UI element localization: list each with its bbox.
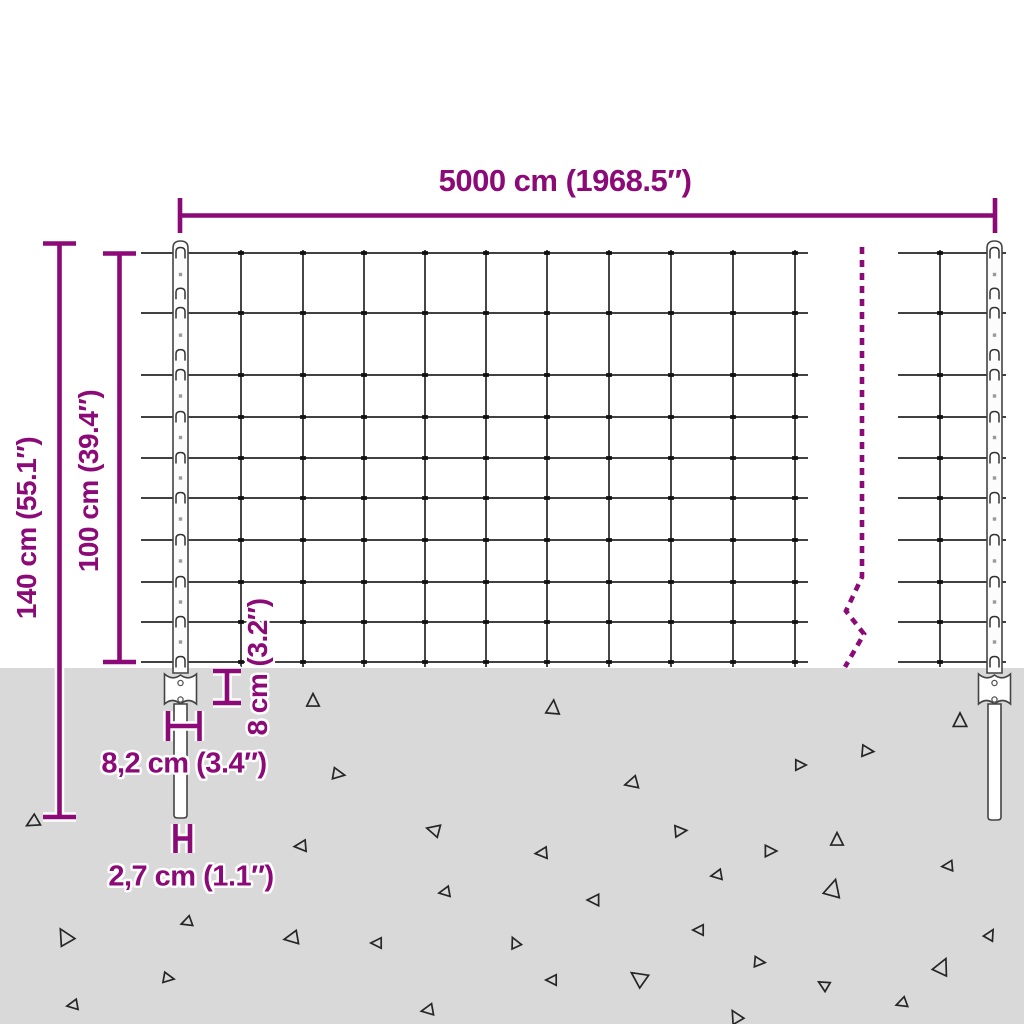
wire-knot xyxy=(730,620,736,624)
wire-knot xyxy=(792,580,798,584)
wire-knot xyxy=(238,251,244,255)
wire-clip xyxy=(990,493,999,504)
wire-knot xyxy=(544,538,550,542)
wire-knot xyxy=(937,660,943,664)
plate-hole xyxy=(992,680,997,685)
wire-knot xyxy=(792,496,798,500)
wire-knot xyxy=(238,311,244,315)
wire-knot xyxy=(730,311,736,315)
wire-clip xyxy=(176,453,185,464)
wire-clip xyxy=(176,288,185,299)
wire-knot xyxy=(606,580,612,584)
wire-knot xyxy=(483,496,489,500)
wire-knot xyxy=(483,538,489,542)
wire-knot xyxy=(937,251,943,255)
wire-knot xyxy=(606,373,612,377)
wire-knot xyxy=(422,580,428,584)
wire-knot xyxy=(238,373,244,377)
post-dot xyxy=(179,600,182,603)
wire-knot xyxy=(422,456,428,460)
post-dot xyxy=(179,640,182,643)
wire-clip xyxy=(990,308,999,319)
wire-knot xyxy=(483,620,489,624)
wire-clip xyxy=(990,453,999,464)
ground xyxy=(0,668,1024,1024)
wire-knot xyxy=(238,415,244,419)
post-dot xyxy=(993,476,996,479)
wire-clip xyxy=(990,657,999,668)
total-width-label: 5000 cm (1968.5″) xyxy=(439,163,692,199)
post-dot xyxy=(179,559,182,562)
wire-knot xyxy=(361,580,367,584)
post-dot xyxy=(993,394,996,397)
wire-clip xyxy=(990,370,999,381)
wire-knot xyxy=(361,538,367,542)
wire-knot xyxy=(544,415,550,419)
wire-knot xyxy=(668,415,674,419)
wire-knot xyxy=(544,373,550,377)
plate-hole xyxy=(178,680,183,685)
wire-knot xyxy=(606,251,612,255)
wire-knot xyxy=(483,415,489,419)
wire-knot xyxy=(422,373,428,377)
wire-knot xyxy=(730,456,736,460)
wire-knot xyxy=(792,620,798,624)
wire-knot xyxy=(544,456,550,460)
wire-knot xyxy=(300,456,306,460)
plate-hole xyxy=(992,697,997,702)
wire-clip xyxy=(990,412,999,423)
wire-knot xyxy=(792,251,798,255)
wire-knot xyxy=(730,580,736,584)
wire-knot xyxy=(300,660,306,664)
post-dot xyxy=(179,273,182,276)
wire-knot xyxy=(361,373,367,377)
wire-knot xyxy=(238,456,244,460)
wire-knot xyxy=(422,660,428,664)
mesh-height-label: 100 cm (39.4″) xyxy=(73,390,105,572)
wire-knot xyxy=(544,311,550,315)
wire-knot xyxy=(606,311,612,315)
wire-knot xyxy=(730,496,736,500)
plate-height-label: 8 cm (3.2″) xyxy=(242,598,274,735)
wire-knot xyxy=(300,373,306,377)
wire-knot xyxy=(422,251,428,255)
wire-clip xyxy=(990,577,999,588)
wire-knot xyxy=(606,496,612,500)
wire-knot xyxy=(792,538,798,542)
total-height-label: 140 cm (55.1″) xyxy=(11,437,43,619)
ground-spike xyxy=(988,704,1001,820)
wire-knot xyxy=(937,538,943,542)
wire-knot xyxy=(300,620,306,624)
wire-knot xyxy=(300,496,306,500)
wire-clip xyxy=(176,535,185,546)
wire-knot xyxy=(483,456,489,460)
wire-knot xyxy=(422,311,428,315)
wire-knot xyxy=(483,660,489,664)
wire-knot xyxy=(606,538,612,542)
wire-clip xyxy=(176,412,185,423)
wire-knot xyxy=(300,311,306,315)
post-dot xyxy=(993,436,996,439)
wire-knot xyxy=(668,496,674,500)
wire-knot xyxy=(483,580,489,584)
wire-knot xyxy=(606,620,612,624)
plate-width-label: 8,2 cm (3.4″) xyxy=(101,748,266,781)
wire-knot xyxy=(544,496,550,500)
post-dot xyxy=(993,517,996,520)
wire-knot xyxy=(238,538,244,542)
wire-knot xyxy=(937,580,943,584)
wire-knot xyxy=(606,660,612,664)
dim-total-width xyxy=(180,198,995,233)
wire-knot xyxy=(937,373,943,377)
wire-clip xyxy=(176,577,185,588)
wire-knot xyxy=(544,580,550,584)
wire-knot xyxy=(937,456,943,460)
post-dot xyxy=(993,559,996,562)
wire-clip xyxy=(176,657,185,668)
wire-clip xyxy=(990,350,999,361)
wire-knot xyxy=(668,538,674,542)
wire-clip xyxy=(176,617,185,628)
wire-knot xyxy=(606,415,612,419)
wire-knot xyxy=(792,660,798,664)
wire-knot xyxy=(361,415,367,419)
wire-knot xyxy=(937,311,943,315)
wire-knot xyxy=(730,660,736,664)
wire-knot xyxy=(422,496,428,500)
wire-knot xyxy=(483,311,489,315)
wire-knot xyxy=(668,660,674,664)
wire-knot xyxy=(238,496,244,500)
post-dot xyxy=(179,436,182,439)
wire-knot xyxy=(937,496,943,500)
post-dot xyxy=(179,517,182,520)
wire-knot xyxy=(668,620,674,624)
post-dot xyxy=(179,333,182,336)
post-dot xyxy=(993,600,996,603)
wire-knot xyxy=(361,660,367,664)
wire-knot xyxy=(300,415,306,419)
wire-knot xyxy=(422,538,428,542)
wire-clip xyxy=(176,248,185,259)
wire-knot xyxy=(422,620,428,624)
wire-knot xyxy=(361,620,367,624)
wire-knot xyxy=(422,415,428,419)
post-dot xyxy=(993,640,996,643)
wire-knot xyxy=(544,620,550,624)
post-dot xyxy=(179,476,182,479)
plate-hole xyxy=(178,697,183,702)
wire-knot xyxy=(483,373,489,377)
post-dot xyxy=(993,333,996,336)
dim-mesh-height xyxy=(103,254,136,663)
wire-knot xyxy=(668,456,674,460)
wire-knot xyxy=(544,660,550,664)
spike-width-label: 2,7 cm (1.1″) xyxy=(108,861,273,894)
wire-knot xyxy=(730,251,736,255)
wire-knot xyxy=(238,580,244,584)
wire-knot xyxy=(937,620,943,624)
wire-knot xyxy=(730,415,736,419)
wire-clip xyxy=(176,493,185,504)
wire-knot xyxy=(300,251,306,255)
wire-clip xyxy=(176,350,185,361)
wire-clip xyxy=(990,288,999,299)
wire-clip xyxy=(990,248,999,259)
wire-knot xyxy=(361,496,367,500)
wire-knot xyxy=(792,373,798,377)
wire-knot xyxy=(668,311,674,315)
wire-knot xyxy=(361,251,367,255)
wire-knot xyxy=(668,373,674,377)
wire-knot xyxy=(300,538,306,542)
post-dot xyxy=(993,273,996,276)
wire-clip xyxy=(176,370,185,381)
wire-knot xyxy=(792,415,798,419)
wire-knot xyxy=(668,580,674,584)
wire-knot xyxy=(300,580,306,584)
wire-knot xyxy=(937,415,943,419)
wire-knot xyxy=(361,311,367,315)
wire-clip xyxy=(990,617,999,628)
wire-knot xyxy=(730,373,736,377)
wire-knot xyxy=(668,251,674,255)
wire-knot xyxy=(792,311,798,315)
wire-knot xyxy=(606,456,612,460)
wire-knot xyxy=(361,456,367,460)
diagram-canvas: 5000 cm (1968.5″) 140 cm (55.1″) 100 cm … xyxy=(0,0,1024,1024)
post-dot xyxy=(179,394,182,397)
wire-clip xyxy=(990,535,999,546)
wire-knot xyxy=(792,456,798,460)
wire-knot xyxy=(544,251,550,255)
wire-clip xyxy=(176,308,185,319)
wire-knot xyxy=(730,538,736,542)
wire-knot xyxy=(483,251,489,255)
